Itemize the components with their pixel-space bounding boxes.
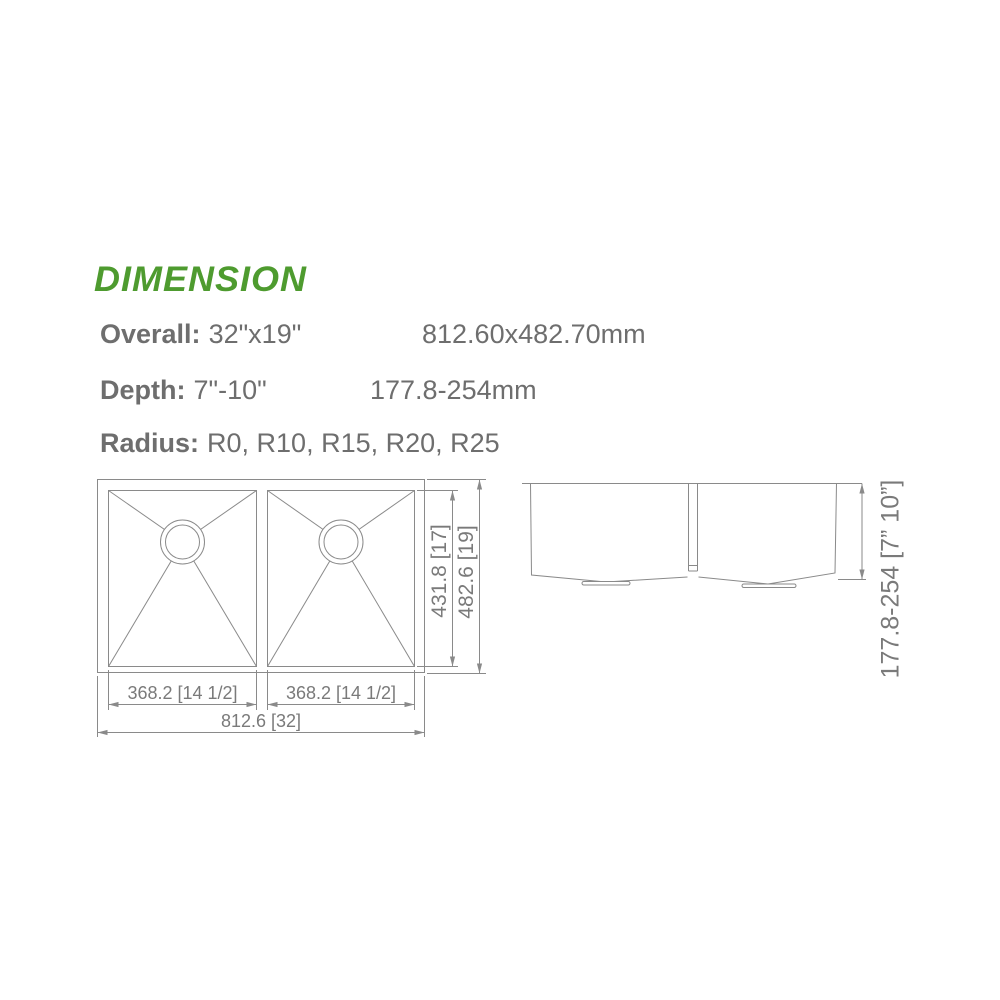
dim-label-bowl-front-to-back: 431.8 [17] <box>428 524 452 617</box>
left-drain-icon <box>161 520 205 564</box>
dim-label-right-bowl-width: 368.2 [14 1/2] <box>267 683 415 704</box>
sink-side-view <box>522 484 866 588</box>
right-drain-icon <box>319 520 363 564</box>
dim-label-left-bowl-width: 368.2 [14 1/2] <box>108 683 257 704</box>
dimension-spec-page: { "title": "DIMENSION", "colors": { "acc… <box>0 0 1000 1000</box>
dim-label-overall-front-to-back: 482.6 [19] <box>455 525 479 618</box>
dim-label-depth-range: 177.8-254 [7” 10”] <box>877 480 906 679</box>
sink-top-view <box>98 480 425 673</box>
technical-drawing <box>0 0 1000 1000</box>
dim-label-overall-width: 812.6 [32] <box>97 711 425 732</box>
